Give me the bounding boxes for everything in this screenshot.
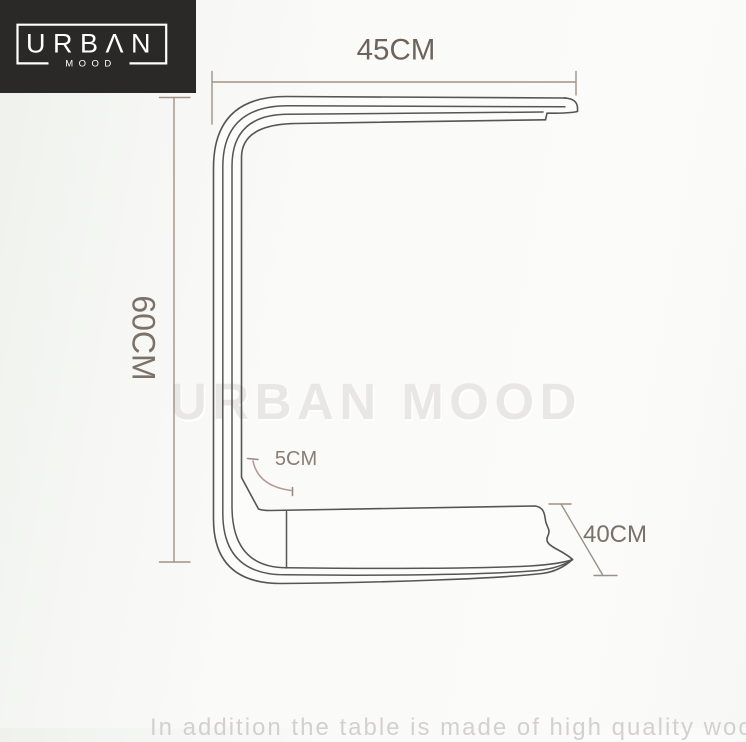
svg-text:5CM: 5CM	[275, 448, 317, 470]
svg-text:60CM: 60CM	[126, 295, 162, 380]
svg-text:45CM: 45CM	[357, 34, 436, 67]
svg-text:URBΛN: URBΛN	[26, 29, 158, 59]
svg-text:40CM: 40CM	[583, 521, 647, 548]
svg-text:MOOD: MOOD	[65, 59, 117, 70]
